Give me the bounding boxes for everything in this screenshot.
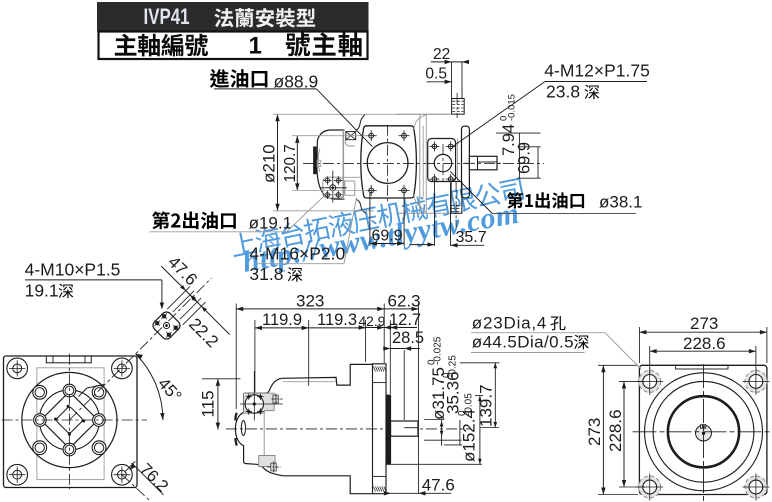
svg-text:139.7: 139.7 — [477, 384, 496, 427]
svg-text:4-M10×P1.5: 4-M10×P1.5 — [25, 260, 121, 280]
svg-text:19.1: 19.1 — [25, 280, 59, 300]
svg-text:62.3: 62.3 — [388, 292, 421, 311]
svg-text:22: 22 — [433, 46, 450, 63]
svg-text:-0.015: -0.015 — [507, 94, 518, 121]
svg-text:ø38.1: ø38.1 — [599, 193, 642, 212]
svg-text:-0.025: -0.025 — [433, 336, 444, 365]
svg-text:28.5: 28.5 — [392, 329, 424, 347]
svg-text:35.7: 35.7 — [456, 229, 487, 246]
svg-text:47.6: 47.6 — [422, 476, 455, 495]
svg-text:ø210: ø210 — [260, 144, 279, 183]
svg-text:-0.25: -0.25 — [448, 355, 459, 378]
svg-text:ø44.5Dia/0.5: ø44.5Dia/0.5 — [472, 333, 574, 352]
svg-text:228.6: 228.6 — [606, 409, 625, 452]
svg-text:IVP41: IVP41 — [144, 4, 190, 29]
svg-text:12.7: 12.7 — [389, 311, 421, 329]
svg-text:273: 273 — [690, 314, 718, 333]
svg-text:4-M16×P2.0: 4-M16×P2.0 — [249, 244, 345, 264]
svg-text:ø19.1: ø19.1 — [249, 214, 292, 233]
svg-text:-0.05: -0.05 — [464, 393, 475, 416]
svg-text:23.8: 23.8 — [546, 82, 580, 102]
svg-text:228.6: 228.6 — [683, 334, 726, 353]
svg-text:120.7: 120.7 — [282, 144, 299, 182]
svg-text:323: 323 — [296, 292, 324, 311]
svg-text:0.5: 0.5 — [425, 66, 447, 83]
svg-text:4-M12×P1.75: 4-M12×P1.75 — [544, 61, 650, 81]
svg-text:273: 273 — [585, 418, 604, 446]
svg-text:119.3: 119.3 — [317, 311, 357, 329]
svg-text:69.9: 69.9 — [516, 142, 534, 174]
svg-text:115: 115 — [199, 390, 218, 417]
svg-text:ø23Dia,4: ø23Dia,4 — [472, 314, 547, 333]
svg-text:31.8: 31.8 — [249, 264, 283, 284]
svg-text:1: 1 — [249, 33, 262, 60]
svg-text:119.9: 119.9 — [262, 311, 302, 329]
